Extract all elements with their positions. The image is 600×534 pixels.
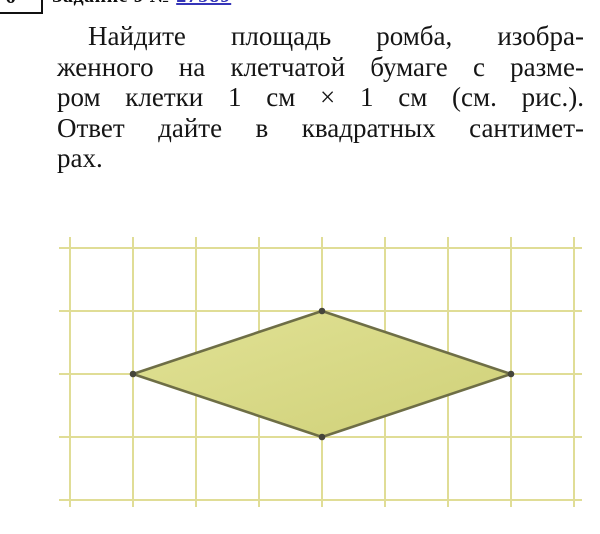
page: 6 Задание 9 №27589 Найдите площадь ромба… <box>0 0 600 534</box>
rhombus-vertex-dot <box>508 371 515 378</box>
rhombus-vertex-dot <box>319 434 326 441</box>
rhombus-vertex-dot <box>319 308 326 315</box>
rhombus-vertex-dot <box>130 371 137 378</box>
rhombus-grid-figure <box>0 0 600 534</box>
rhombus-shape <box>133 311 511 437</box>
